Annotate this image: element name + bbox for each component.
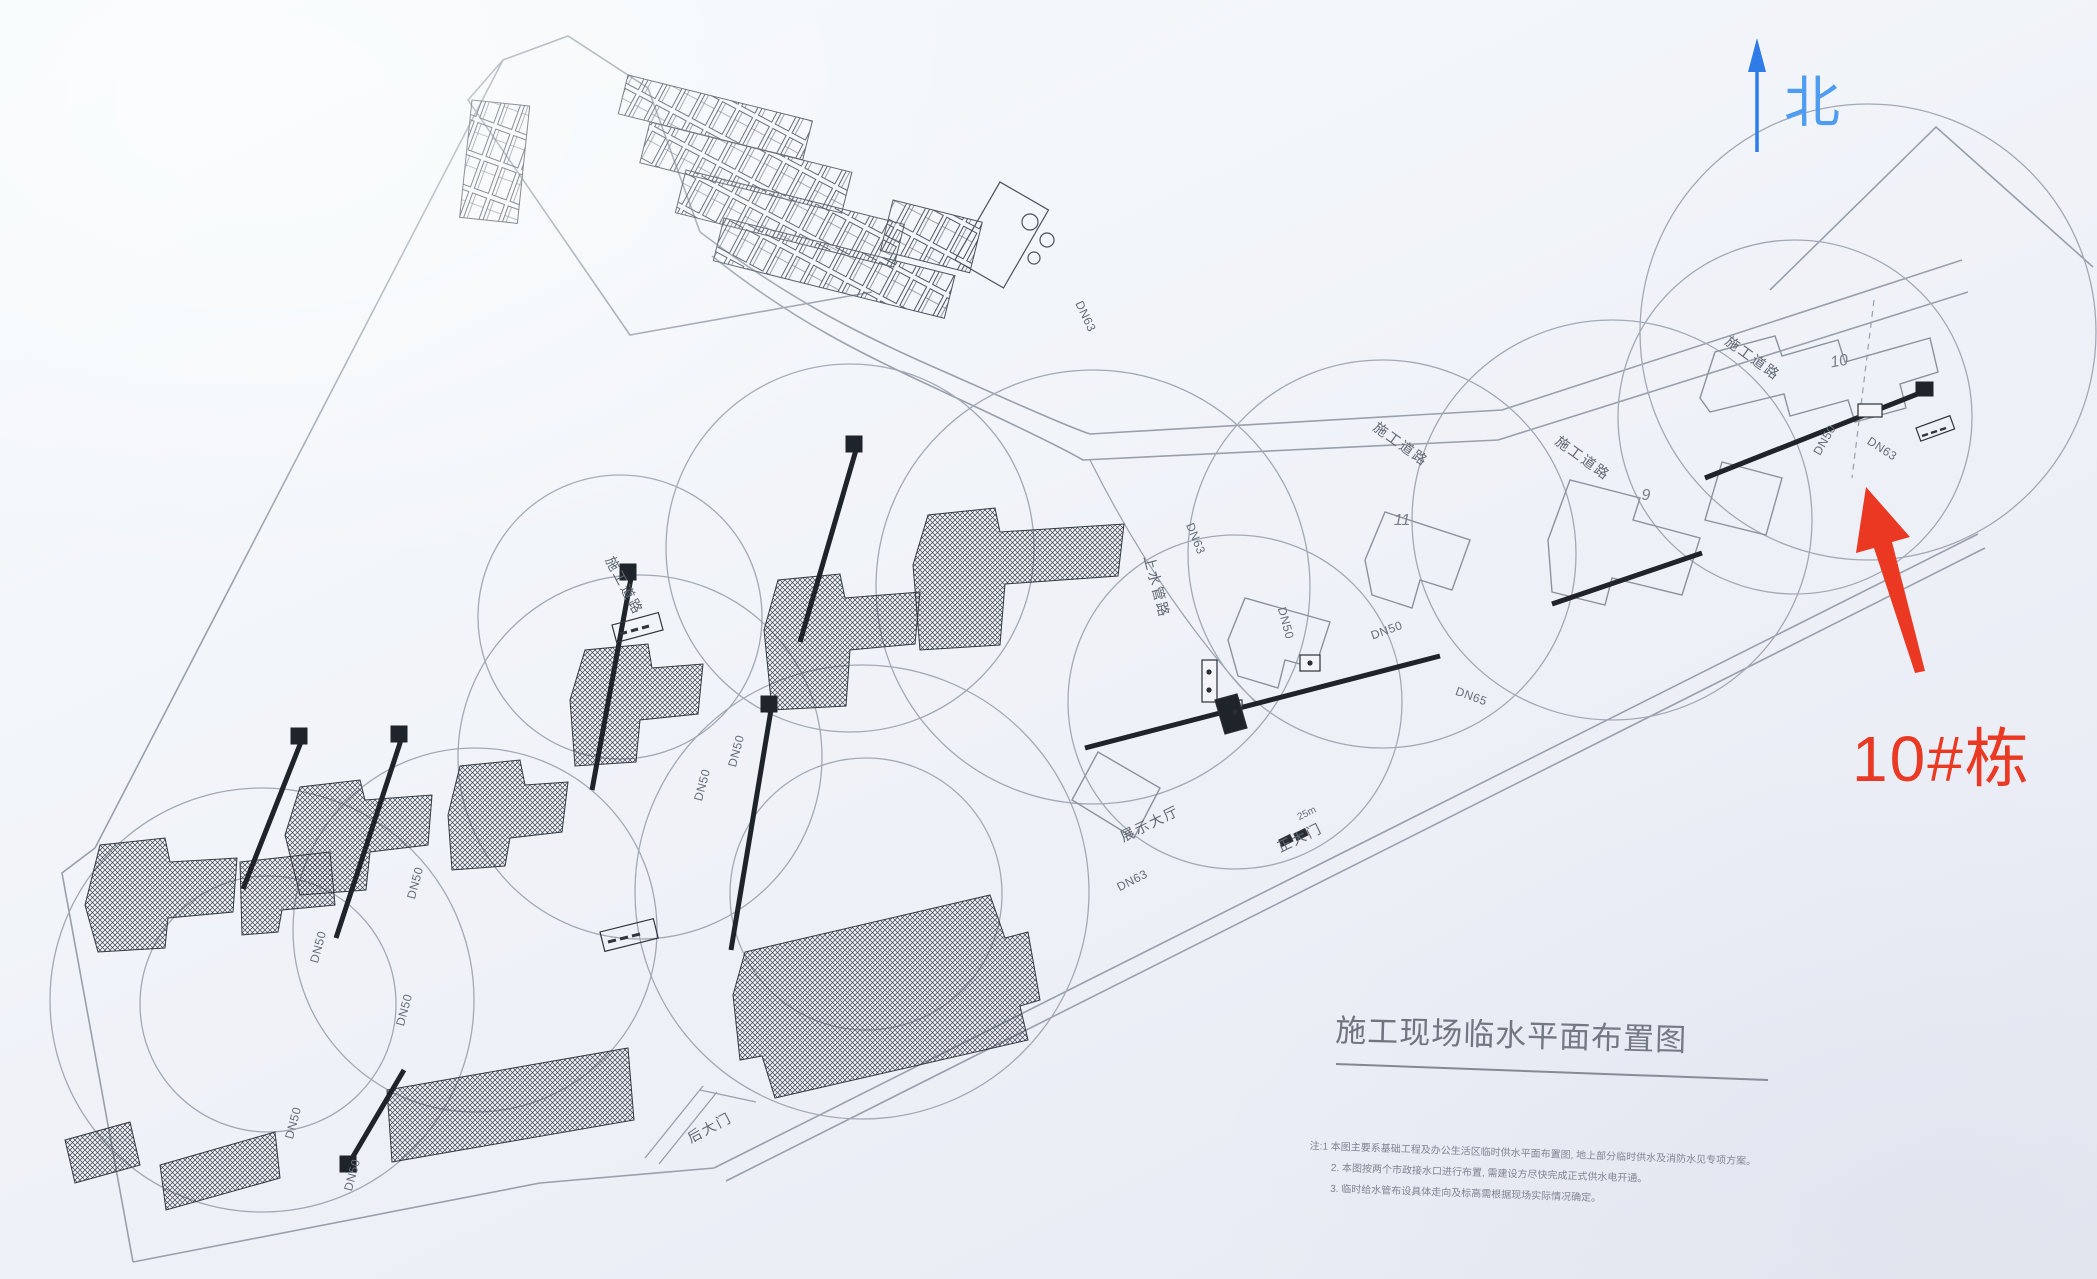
pipe-label-dn50: DN50 [307,929,329,964]
building-number-9: 9 [1642,487,1651,504]
building-callout-label: 10#栋 [1852,708,2031,800]
road-label: 施工道路 [1552,433,1613,484]
pipe-label-dn63: DN63 [1183,521,1208,557]
pipe-label-dn50: DN50 [691,767,713,802]
pipe-label-dn50: DN50 [1275,605,1297,640]
pipe-label-dn63: DN63 [1865,434,1900,464]
crane-base-detail [1202,655,1320,734]
building-number-10: 10 [1829,352,1850,372]
buildings-outline [1072,336,1938,838]
distance-label: 25m [1296,805,1318,823]
north-label: 北 [1784,58,1840,139]
building-number-11: 11 [1394,512,1411,529]
road-label: 施工道路 [1722,333,1783,384]
north-arrow-icon [1748,38,1766,152]
pipe-label-dn63: DN63 [1072,299,1099,335]
pipe-label-dn63: DN63 [1114,867,1149,894]
pipe-label-dn50: DN50 [404,865,426,900]
water-main-label: 上水管路 [1141,554,1173,620]
title-underline [1336,1064,1768,1080]
rear-gate-label: 后大门 [685,1109,735,1146]
boundary-and-roads [62,36,2093,1262]
pipe-label-dn50: DN50 [725,733,747,768]
pipe-label-dn65: DN65 [1454,684,1490,708]
pipe-label-dn50: DN50 [1369,618,1405,642]
pipe-label-dn50: DN50 [1810,422,1838,457]
site-plan-photo: DN50 DN50 DN50 DN50 DN50 DN50 DN50 DN50 … [0,0,2097,1279]
callout-arrow-icon [1856,487,1925,673]
buildings-hatched [65,508,1124,1210]
pipe-label-dn50: DN50 [282,1105,304,1140]
main-gate-label: 正大门 [1275,820,1325,855]
blueprint-linework: DN50 DN50 DN50 DN50 DN50 DN50 DN50 DN50 … [0,0,2097,1279]
dormitory-complex [460,75,1054,318]
